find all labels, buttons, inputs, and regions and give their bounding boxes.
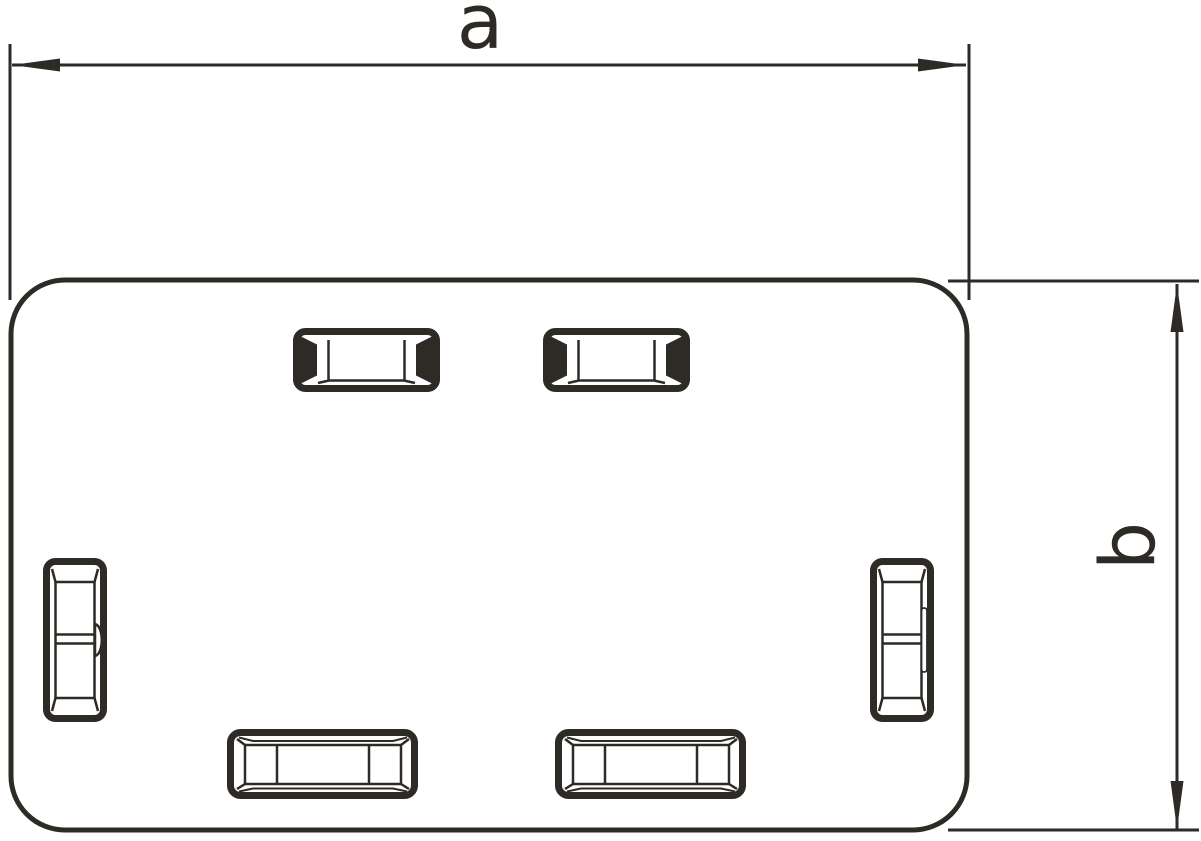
latch-notch-sliver-icon <box>922 608 928 672</box>
latch-slot-bottom-right <box>559 733 743 796</box>
arrowhead-left-icon <box>12 59 60 72</box>
latch-slot-right <box>874 562 931 719</box>
dim-label-b: b <box>1083 522 1172 570</box>
drawing-canvas: a b <box>0 0 1201 841</box>
latch-slot-bottom-left <box>231 733 415 796</box>
latch-slot-top-left <box>297 332 437 389</box>
latch-slot-left <box>47 562 104 719</box>
dim-height: b <box>948 281 1199 830</box>
arrowhead-up-icon <box>1171 284 1184 332</box>
technical-drawing: a b <box>0 0 1201 841</box>
body-outline <box>11 280 967 830</box>
dim-label-a: a <box>457 0 504 66</box>
arrowhead-right-icon <box>918 59 966 72</box>
latch-notch-arc-icon <box>95 624 102 656</box>
dim-width: a <box>10 0 969 300</box>
latch-slot-top-right <box>547 332 687 389</box>
arrowhead-down-icon <box>1171 781 1184 829</box>
